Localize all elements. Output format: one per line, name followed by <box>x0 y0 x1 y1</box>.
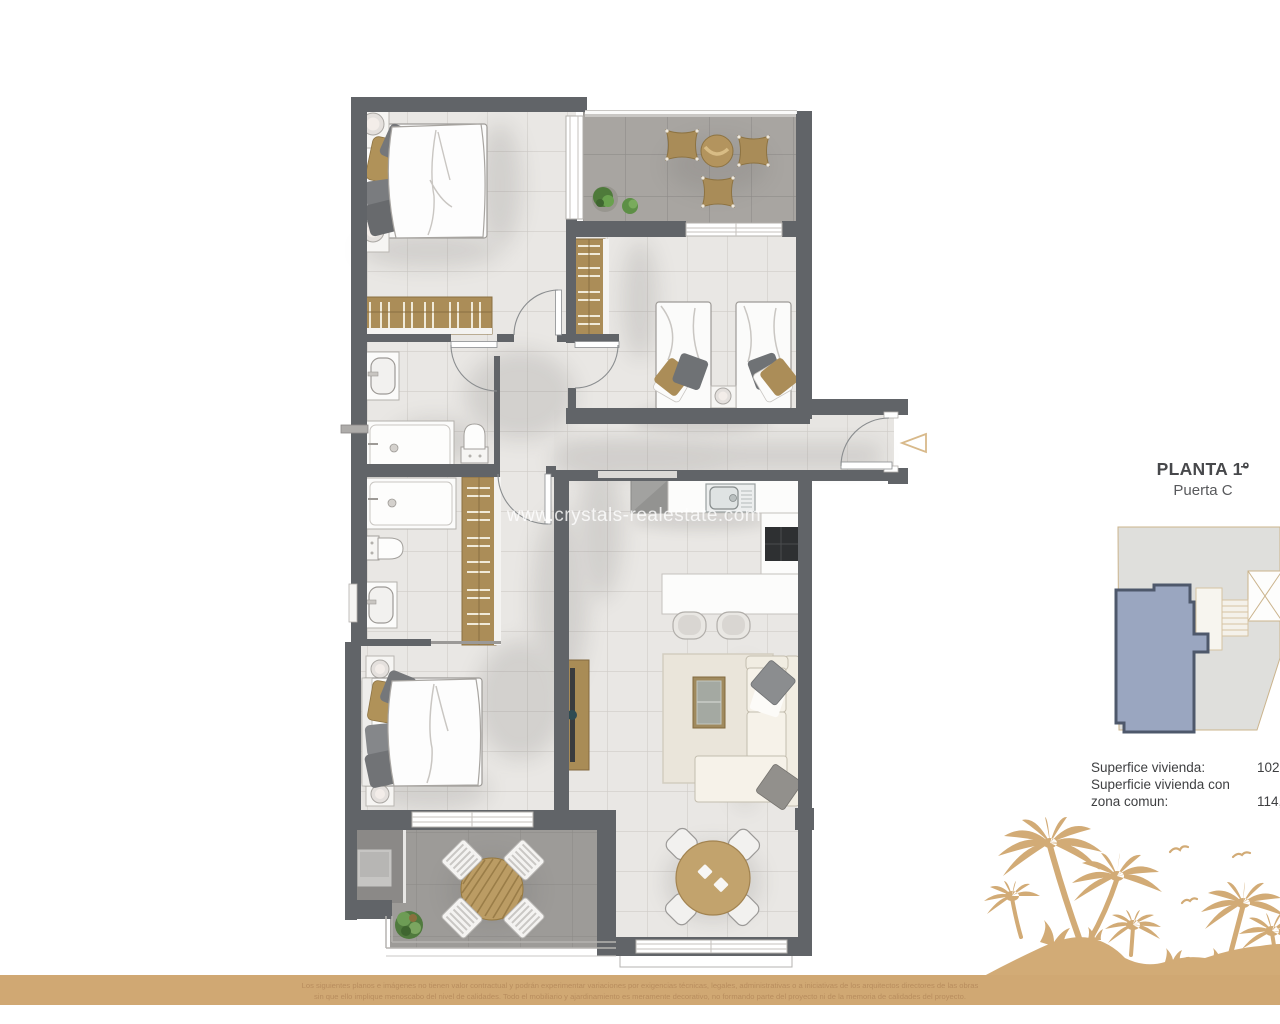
svg-text:102,: 102, <box>1257 760 1280 775</box>
svg-text:Los siguientes planos e imágen: Los siguientes planos e imágenes no tien… <box>302 981 979 990</box>
svg-text:114,: 114, <box>1257 794 1280 809</box>
svg-text:PLANTA 1º: PLANTA 1º <box>1157 459 1250 479</box>
svg-text:Superficie vivienda con: Superficie vivienda con <box>1091 777 1230 792</box>
svg-text:www.crystals-realestate.com: www.crystals-realestate.com <box>506 505 761 526</box>
svg-text:zona comun:: zona comun: <box>1091 794 1168 809</box>
svg-text:sin que ello implique menoscab: sin que ello implique menoscabo del nive… <box>314 992 966 1001</box>
svg-text:Puerta C: Puerta C <box>1173 482 1232 499</box>
svg-text:Superfice vivienda:: Superfice vivienda: <box>1091 760 1205 775</box>
